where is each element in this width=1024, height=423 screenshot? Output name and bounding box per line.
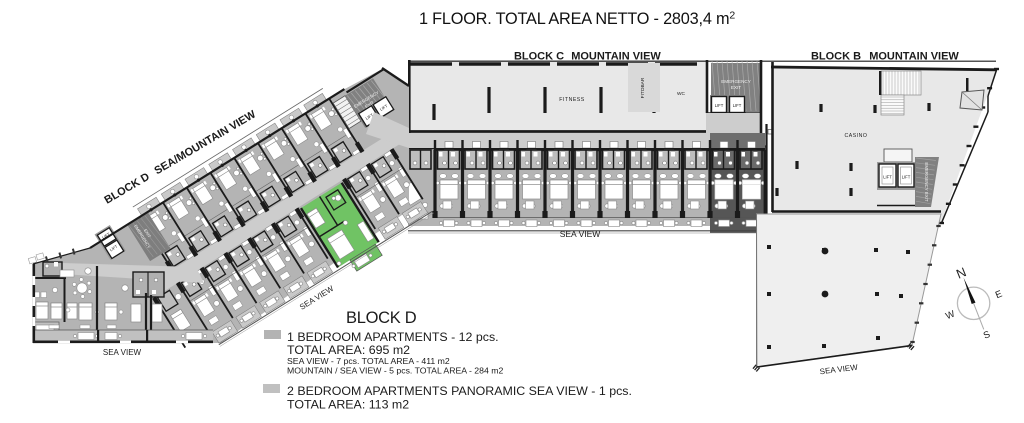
svg-text:TOTAL AREA: 113 m2: TOTAL AREA: 113 m2 <box>287 398 409 412</box>
svg-text:1 BEDROOM APARTMENTS - 12 pcs.: 1 BEDROOM APARTMENTS - 12 pcs. <box>287 330 499 344</box>
svg-text:LIFT: LIFT <box>883 175 892 180</box>
svg-text:FITNESS: FITNESS <box>559 97 584 103</box>
svg-text:SEA VIEW - 7 pcs. TOTAL AREA -: SEA VIEW - 7 pcs. TOTAL AREA - 411 m2 <box>287 356 450 366</box>
svg-text:MOUNTAIN / SEA VIEW - 5 pcs. T: MOUNTAIN / SEA VIEW - 5 pcs. TOTAL AREA … <box>287 366 503 376</box>
svg-text:SEA VIEW: SEA VIEW <box>560 229 601 239</box>
svg-text:LIFT: LIFT <box>733 103 742 108</box>
svg-text:EMERGENCY EXIT: EMERGENCY EXIT <box>924 162 929 202</box>
svg-text:LIFT: LIFT <box>715 103 724 108</box>
svg-text:LIFT: LIFT <box>902 175 911 180</box>
svg-text:EMERGENCY: EMERGENCY <box>721 79 751 84</box>
svg-text:WC: WC <box>677 91 686 97</box>
svg-text:EXIT: EXIT <box>731 85 741 90</box>
svg-text:SEA VIEW: SEA VIEW <box>103 348 142 357</box>
svg-text:1 FLOOR. TOTAL AREA NETTO - 28: 1 FLOOR. TOTAL AREA NETTO - 2803,4 m2 <box>419 10 735 29</box>
svg-text:FITOBAR: FITOBAR <box>640 77 646 98</box>
svg-text:TOTAL AREA: 695 m2: TOTAL AREA: 695 m2 <box>287 343 410 357</box>
svg-text:BLOCK D: BLOCK D <box>346 309 417 327</box>
svg-text:CASINO: CASINO <box>845 133 868 139</box>
svg-text:2 BEDROOM APARTMENTS PANORAMIC: 2 BEDROOM APARTMENTS PANORAMIC SEA VIEW … <box>287 384 632 398</box>
